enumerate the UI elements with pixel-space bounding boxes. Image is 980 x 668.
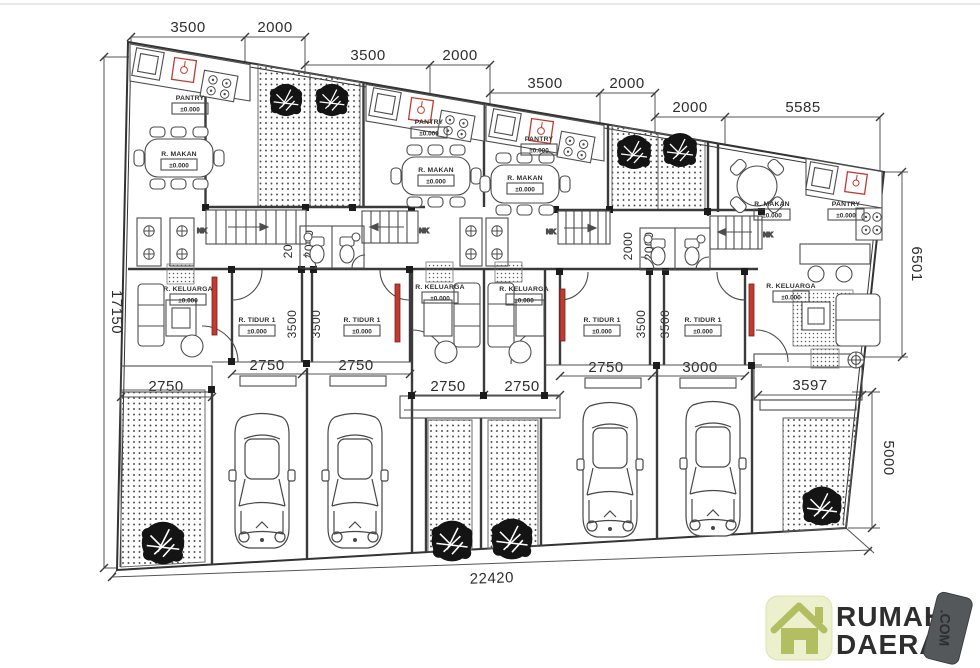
sink-icon bbox=[489, 109, 521, 141]
toilet-icon bbox=[651, 239, 665, 265]
rug bbox=[167, 264, 194, 284]
floor-drain-icon bbox=[848, 352, 864, 368]
dim-width-8: 3597 bbox=[792, 377, 827, 394]
stair-label-nk: NK bbox=[763, 232, 773, 239]
floor-plan-canvas: 3500 2000 3500 2000 3500 2000 2000 5585 … bbox=[0, 0, 980, 668]
bedroom-level: ±0.000 bbox=[592, 329, 612, 336]
stool-icon bbox=[808, 266, 824, 282]
basin-icon bbox=[697, 235, 705, 243]
stair-label-nk: NK bbox=[419, 228, 429, 235]
dim-wc-3: 2000 bbox=[621, 232, 635, 261]
burner-icon bbox=[862, 226, 870, 234]
rug bbox=[495, 262, 522, 282]
dim-right-lower: 5000 bbox=[880, 440, 897, 475]
basin-icon bbox=[644, 235, 652, 243]
tree-icon bbox=[316, 84, 348, 116]
bedroom-level: ±0.000 bbox=[247, 329, 267, 336]
car-icon bbox=[229, 414, 295, 549]
dim-bedroom-depth-3: 3500 bbox=[634, 310, 648, 339]
toilet-icon bbox=[310, 237, 324, 263]
armchair-icon bbox=[181, 335, 203, 357]
pantry-level: ±0.000 bbox=[529, 148, 549, 155]
dim-width-6: 2750 bbox=[588, 359, 623, 376]
stair-label-nk: NK bbox=[546, 229, 556, 236]
living-label: R. KELUARGA bbox=[163, 286, 212, 293]
dining-label: R. MAKAN bbox=[418, 167, 454, 174]
cooktop-icon bbox=[437, 110, 475, 142]
dining-level: ±0.000 bbox=[426, 179, 446, 186]
dim-top-3: 3500 bbox=[350, 47, 385, 64]
dining-level: ±0.000 bbox=[169, 163, 189, 170]
pantry-label: PANTRY bbox=[525, 136, 554, 143]
sink-icon bbox=[369, 88, 401, 120]
tree-icon bbox=[270, 84, 302, 116]
dim-top-7: 2000 bbox=[672, 99, 707, 116]
pantry-label: PANTRY bbox=[832, 201, 861, 208]
logo-tag-text: .COM bbox=[936, 609, 953, 646]
sink-icon bbox=[806, 162, 838, 194]
dining-label: R. MAKAN bbox=[507, 175, 543, 182]
dining-table-8 bbox=[391, 145, 481, 207]
dim-top-1: 3500 bbox=[170, 19, 205, 36]
stair-1 bbox=[206, 210, 306, 244]
tree-icon bbox=[663, 133, 697, 167]
toilet-icon bbox=[340, 237, 354, 263]
stair-2 bbox=[362, 211, 418, 243]
living-level: ±0.000 bbox=[430, 296, 450, 303]
bedroom-label: R. TIDUR 1 bbox=[343, 317, 380, 324]
bedroom-level: ±0.000 bbox=[693, 329, 713, 336]
living-rooms bbox=[138, 262, 880, 368]
living-label: R. KELUARGA bbox=[499, 286, 548, 293]
toilet-icon bbox=[685, 239, 699, 265]
stair-3 bbox=[558, 211, 610, 244]
dim-width-3: 2750 bbox=[338, 357, 373, 374]
armchair-icon bbox=[509, 341, 531, 363]
sink-icon bbox=[132, 48, 164, 80]
living-label: R. KELUARGA bbox=[415, 284, 464, 291]
pantry-level: ±0.000 bbox=[180, 107, 200, 114]
sofa-icon bbox=[138, 284, 164, 346]
pantry-level: ±0.000 bbox=[419, 131, 439, 138]
pantry-label: PANTRY bbox=[415, 119, 444, 126]
dining-label: R. MAKAN bbox=[754, 201, 790, 208]
basin-icon bbox=[352, 233, 360, 241]
car-icon bbox=[680, 402, 746, 537]
coffee-table bbox=[802, 302, 830, 330]
tree-icon bbox=[492, 519, 533, 560]
coffee-table bbox=[424, 300, 452, 336]
dining-level: ±0.000 bbox=[762, 213, 782, 220]
dim-right-upper: 6501 bbox=[908, 246, 925, 281]
rug bbox=[426, 262, 453, 282]
site-logo: RUMAH DAERAH .COM bbox=[766, 591, 974, 666]
dining-label: R. MAKAN bbox=[161, 151, 197, 158]
stair-label-nk: NK bbox=[197, 228, 207, 235]
tree-icon bbox=[142, 522, 185, 565]
ottoman bbox=[811, 349, 839, 368]
dim-width-2: 2750 bbox=[249, 357, 284, 374]
bedroom-level: ±0.000 bbox=[352, 329, 372, 336]
burner-icon bbox=[873, 226, 881, 234]
dining-table-8 bbox=[134, 127, 224, 189]
cooktop-icon bbox=[557, 131, 595, 163]
tree-icon bbox=[802, 486, 841, 525]
dim-top-5: 3500 bbox=[527, 75, 562, 92]
cooktop-icon bbox=[200, 70, 238, 102]
dim-width-7: 3000 bbox=[682, 359, 717, 376]
logo-word-1: RUMAH bbox=[836, 601, 945, 632]
bench-counter bbox=[800, 244, 870, 264]
car-icon bbox=[577, 403, 643, 538]
stove-sink-red-icon bbox=[845, 172, 868, 195]
dining-table-8 bbox=[480, 153, 570, 215]
stool-icon bbox=[836, 266, 852, 282]
dim-top-2: 2000 bbox=[257, 19, 292, 36]
tree-icon bbox=[432, 521, 473, 562]
bedroom-label: R. TIDUR 1 bbox=[583, 317, 620, 324]
living-label: R. KELUARGA bbox=[766, 283, 815, 290]
dim-bottom: 22420 bbox=[469, 569, 514, 588]
car-icon bbox=[322, 414, 388, 549]
pantry-level: ±0.000 bbox=[836, 213, 856, 220]
pantry-label: PANTRY bbox=[176, 95, 205, 102]
stair-4 bbox=[710, 216, 762, 249]
living-level: ±0.000 bbox=[178, 298, 198, 305]
living-level: ±0.000 bbox=[781, 295, 801, 302]
dim-bedroom-depth-1: 3500 bbox=[285, 310, 299, 339]
living-level: ±0.000 bbox=[514, 298, 534, 305]
bedroom-label: R. TIDUR 1 bbox=[684, 317, 721, 324]
dim-top-6: 2000 bbox=[609, 75, 644, 92]
armchair-icon bbox=[435, 341, 457, 363]
basin-icon bbox=[304, 233, 312, 241]
burner-icon bbox=[873, 213, 881, 221]
bedroom-label: R. TIDUR 1 bbox=[238, 317, 275, 324]
stove-sink-red-icon bbox=[172, 58, 197, 83]
dim-width-5: 2750 bbox=[504, 378, 539, 395]
dim-top-4: 2000 bbox=[442, 47, 477, 64]
tree-icon bbox=[617, 135, 651, 169]
dim-top-8: 5585 bbox=[785, 99, 820, 116]
floor-plan-page: 3500 2000 3500 2000 3500 2000 2000 5585 … bbox=[0, 0, 980, 668]
dining-level: ±0.000 bbox=[515, 187, 535, 194]
dim-width-4: 2750 bbox=[430, 378, 465, 395]
